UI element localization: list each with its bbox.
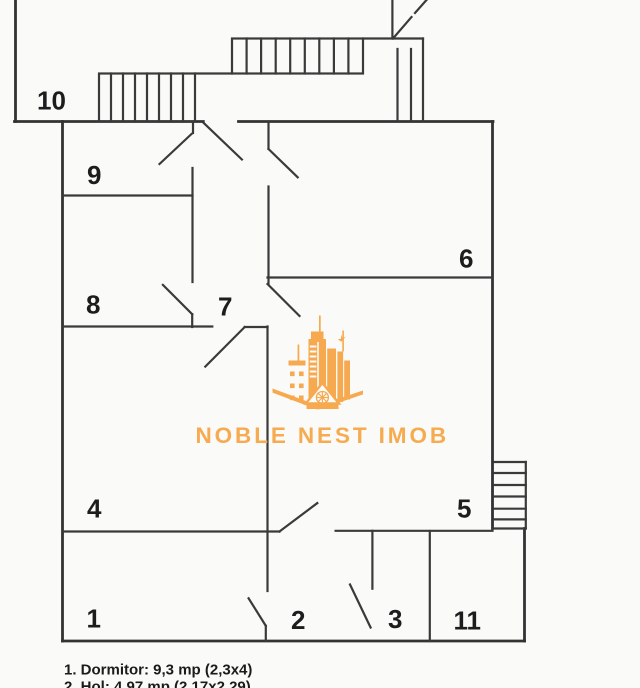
svg-text:2: 2 (291, 605, 305, 635)
svg-text:6: 6 (459, 244, 473, 274)
svg-text:1. Dormitor: 9,3 mp (2,3x4): 1. Dormitor: 9,3 mp (2,3x4) (64, 662, 252, 679)
svg-text:3: 3 (388, 604, 402, 634)
svg-text:10: 10 (37, 86, 66, 116)
svg-text:7: 7 (218, 292, 232, 322)
svg-text:8: 8 (86, 290, 100, 320)
svg-text:4: 4 (87, 494, 102, 524)
svg-text:5: 5 (457, 494, 471, 524)
svg-text:NOBLE NEST IMOB: NOBLE NEST IMOB (196, 423, 450, 448)
svg-text:1: 1 (87, 604, 101, 634)
svg-text:9: 9 (87, 160, 101, 190)
svg-text:2. Hol: 4,97 mp (2,17x2,29): 2. Hol: 4,97 mp (2,17x2,29) (64, 679, 251, 688)
svg-text:11: 11 (454, 606, 482, 636)
